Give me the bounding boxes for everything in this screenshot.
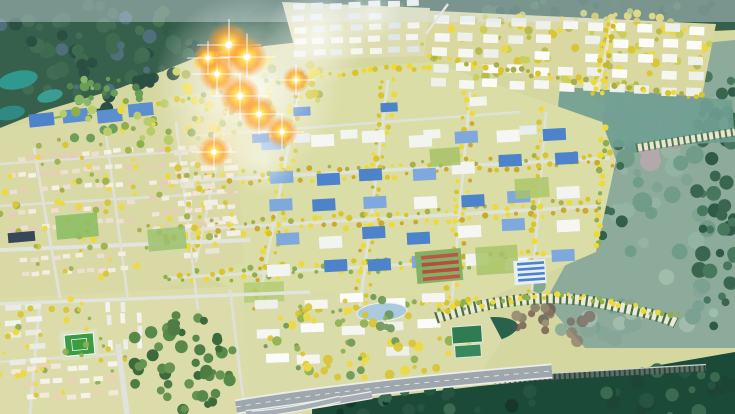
master-plan-rendering bbox=[0, 0, 735, 414]
park-west-a bbox=[55, 212, 99, 240]
lawn-c bbox=[514, 177, 549, 199]
park-west-b bbox=[147, 226, 187, 251]
sports-court-b bbox=[455, 344, 482, 358]
aerial-rendering-canvas bbox=[0, 0, 735, 414]
screenshot-stage bbox=[0, 0, 735, 414]
lawn-a bbox=[475, 245, 519, 276]
lawn-b bbox=[429, 147, 460, 167]
sports-court-a bbox=[451, 325, 482, 344]
